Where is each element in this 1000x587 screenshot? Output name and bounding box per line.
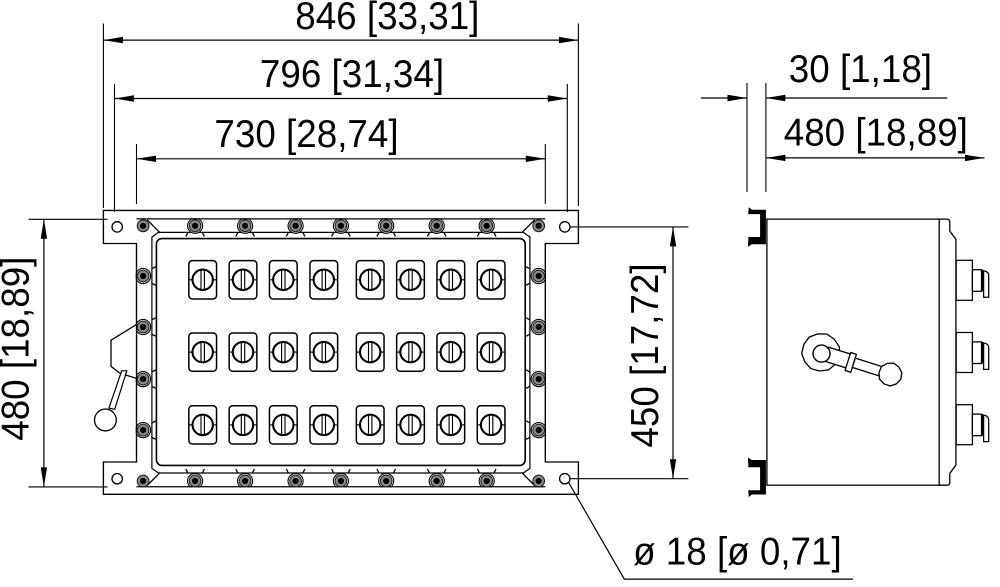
svg-text:450 [17,72]: 450 [17,72] (623, 263, 666, 447)
svg-text:730 [28,74]: 730 [28,74] (214, 112, 398, 155)
svg-text:30 [1,18]: 30 [1,18] (789, 47, 932, 90)
svg-text:796 [31,34]: 796 [31,34] (260, 52, 444, 95)
svg-text:480 [18,89]: 480 [18,89] (0, 257, 37, 441)
svg-text:ø 18 [ø 0,71]: ø 18 [ø 0,71] (633, 530, 842, 573)
svg-text:846 [33,31]: 846 [33,31] (295, 0, 479, 37)
svg-text:480 [18,89]: 480 [18,89] (784, 111, 968, 154)
